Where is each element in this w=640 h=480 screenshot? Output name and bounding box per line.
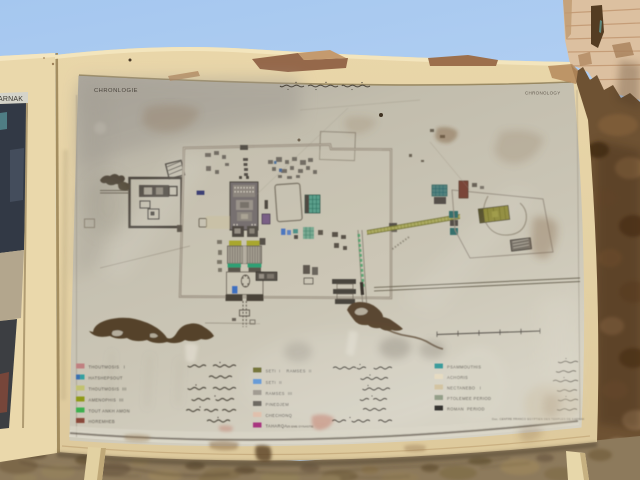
svg-text:25 EME DYNASTIE: 25 EME DYNASTIE: [287, 425, 314, 429]
svg-text:TAHARQA: TAHARQA: [266, 424, 288, 429]
svg-text:HATSHEPSOUT: HATSHEPSOUT: [89, 376, 123, 381]
svg-text:ARNAK: ARNAK: [0, 96, 23, 103]
svg-text:TOUT ANKH AMON: TOUT ANKH AMON: [89, 409, 130, 414]
svg-text:PTOLEMEE PERIOD: PTOLEMEE PERIOD: [447, 396, 491, 401]
svg-text:THOUTMOSIS III: THOUTMOSIS III: [89, 387, 127, 392]
svg-text:HOREMHEB: HOREMHEB: [89, 419, 115, 424]
svg-text:THOUTMOSIS I: THOUTMOSIS I: [89, 365, 126, 370]
svg-text:CHRONLOGIE: CHRONLOGIE: [94, 88, 138, 94]
svg-text:CHRONOLOGY: CHRONOLOGY: [525, 91, 561, 96]
svg-text:AMENOPHIS III: AMENOPHIS III: [89, 398, 124, 403]
svg-text:ROMAN PERIOD: ROMAN PERIOD: [447, 407, 485, 412]
